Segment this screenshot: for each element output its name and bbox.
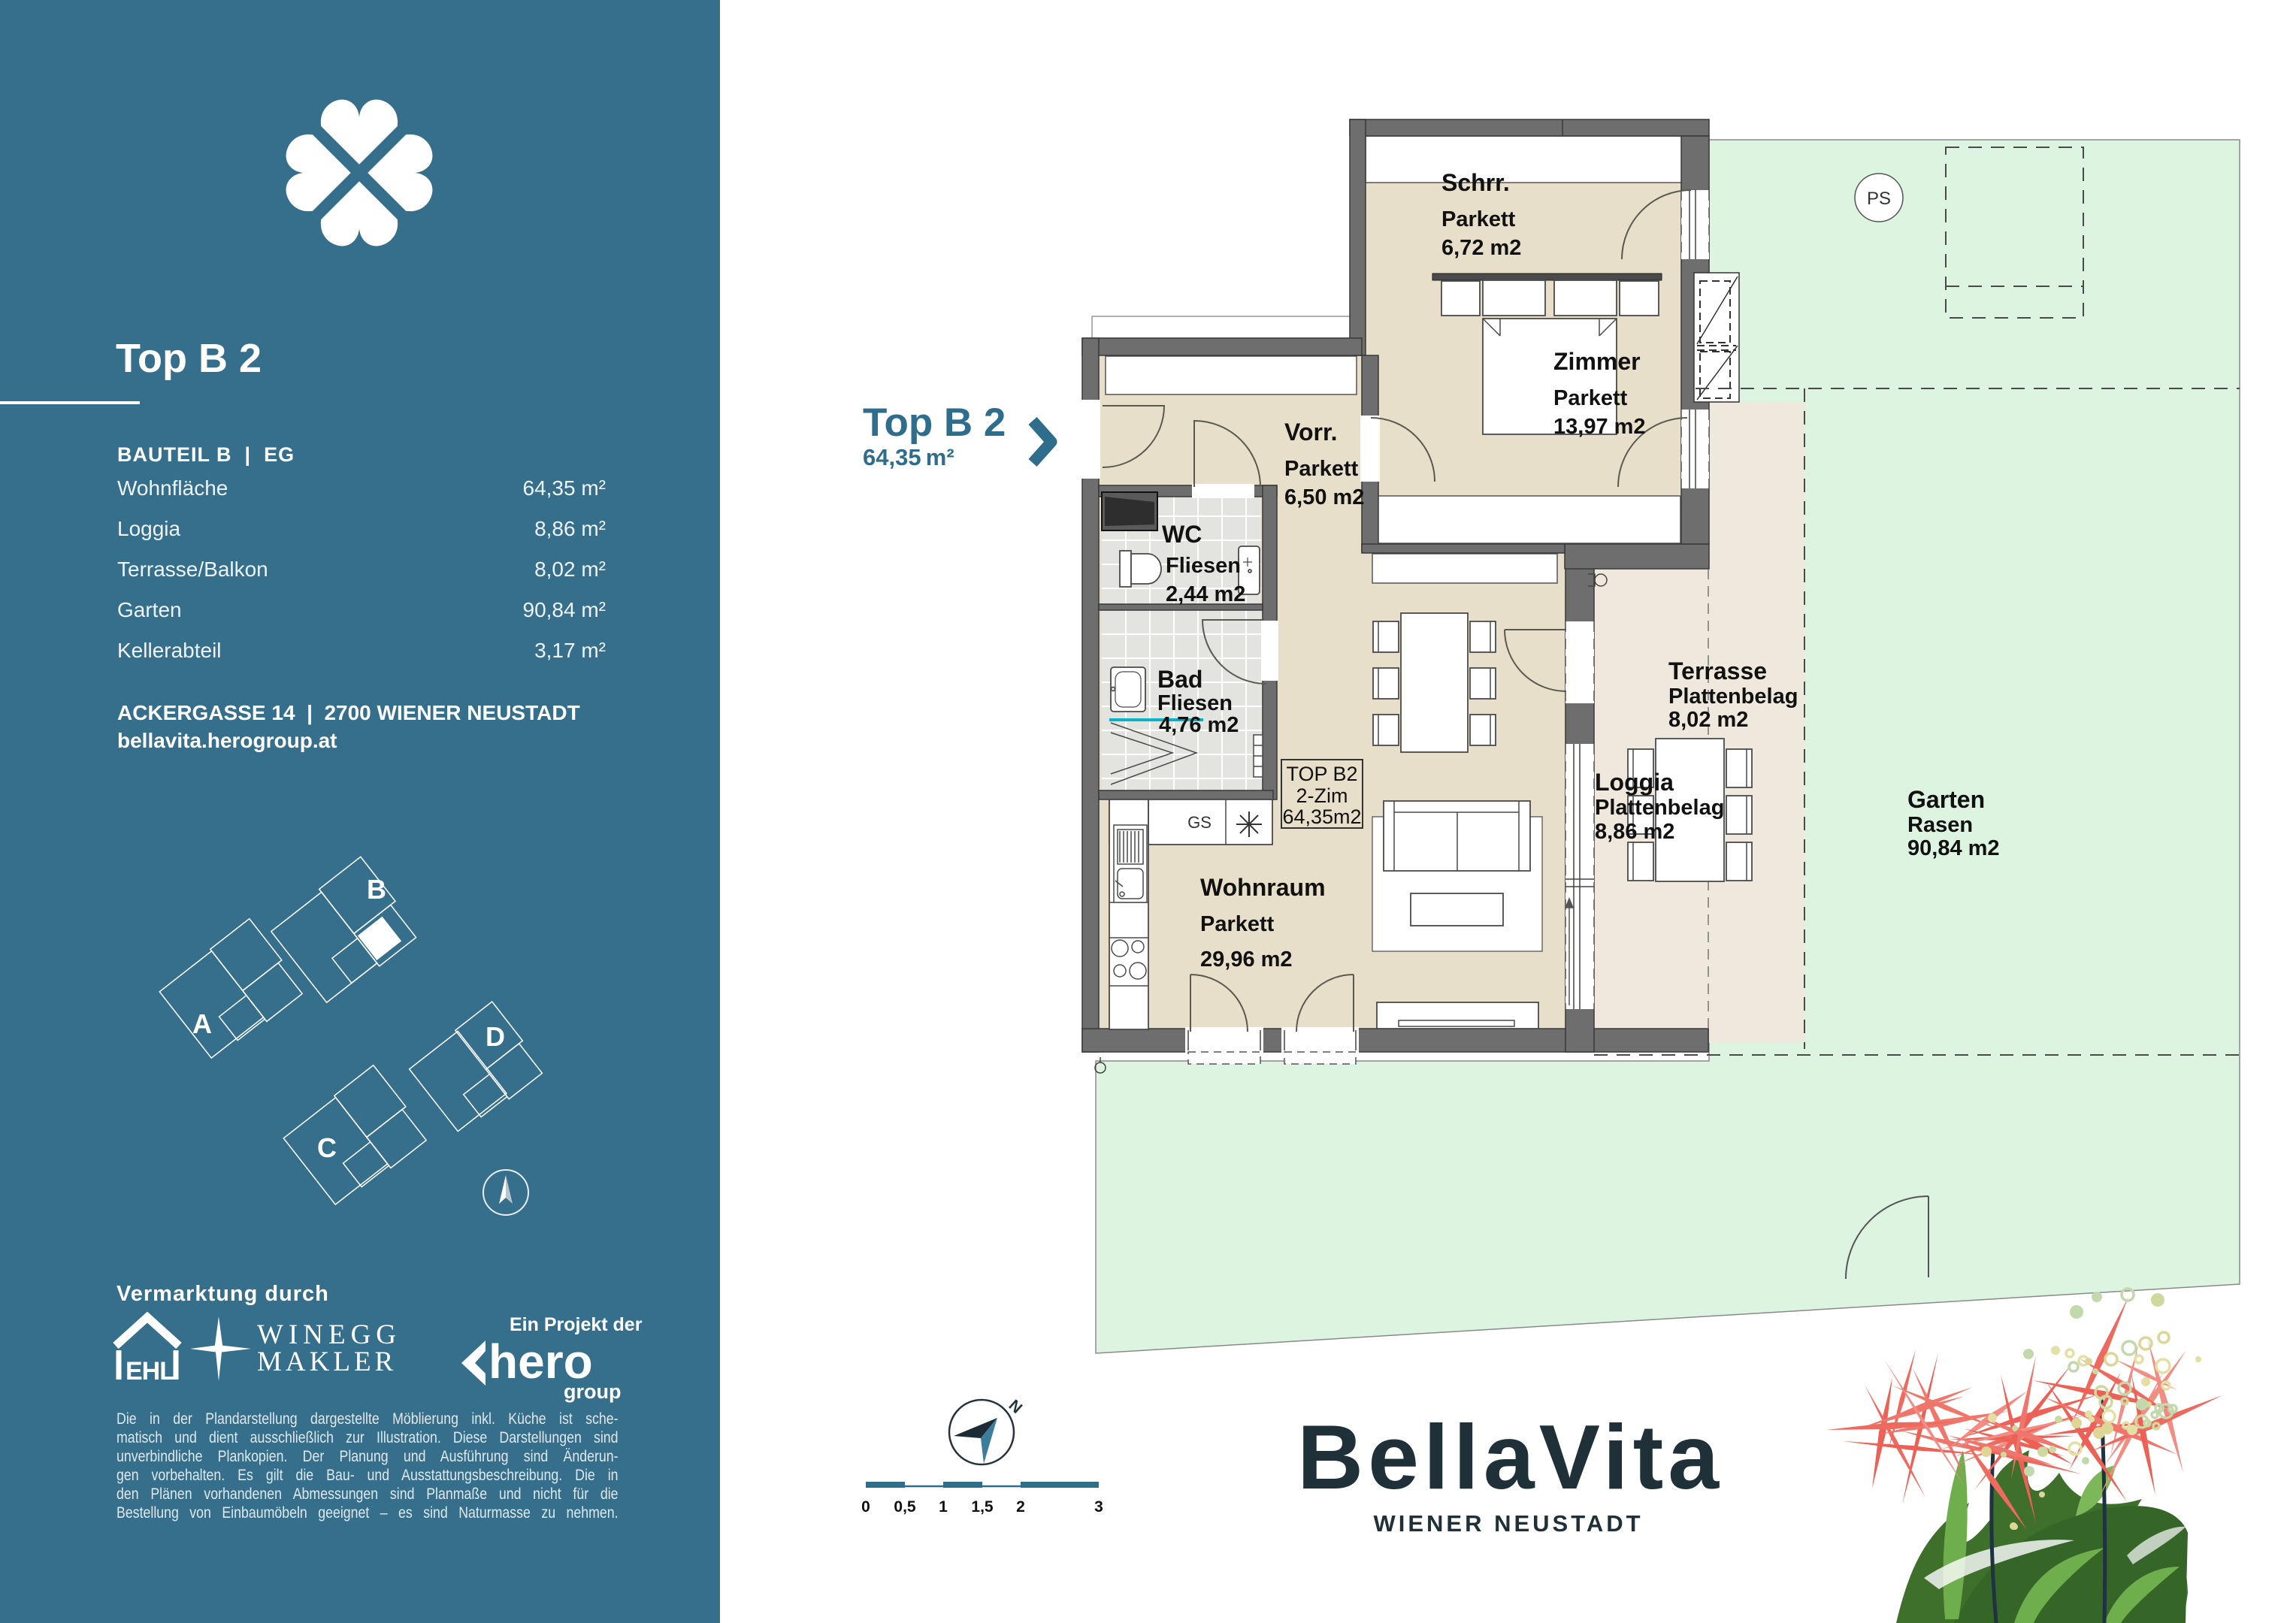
svg-text:Bad: Bad <box>1157 666 1202 693</box>
svg-text:Schrr.: Schrr. <box>1441 169 1510 196</box>
svg-text:90,84 m2: 90,84 m2 <box>1907 836 2000 860</box>
svg-text:BellaVita: BellaVita <box>1297 1406 1723 1508</box>
svg-text:Rasen: Rasen <box>1907 813 1973 837</box>
svg-text:Parkett: Parkett <box>1284 457 1359 481</box>
svg-text:group: group <box>564 1380 621 1403</box>
svg-text:13,97 m2: 13,97 m2 <box>1553 415 1646 439</box>
svg-text:B: B <box>367 874 386 905</box>
svg-text:GS: GS <box>1187 813 1212 832</box>
svg-text:WIENER NEUSTADT: WIENER NEUSTADT <box>1373 1510 1643 1537</box>
svg-text:0,5: 0,5 <box>894 1498 916 1516</box>
svg-text:Top B 2: Top B 2 <box>863 400 1006 445</box>
svg-text:EHL: EHL <box>126 1357 174 1386</box>
svg-text:Vorr.: Vorr. <box>1284 419 1338 446</box>
svg-text:64,35m2: 64,35m2 <box>1282 805 1361 828</box>
svg-text:2-Zim: 2-Zim <box>1296 784 1348 807</box>
svg-text:WC: WC <box>1162 521 1202 548</box>
svg-text:3: 3 <box>1094 1498 1103 1516</box>
svg-text:PS: PS <box>1867 189 1891 209</box>
svg-text:Fliesen: Fliesen <box>1157 691 1233 715</box>
svg-text:Fliesen: Fliesen <box>1166 554 1241 578</box>
svg-text:6,72 m2: 6,72 m2 <box>1441 236 1521 260</box>
svg-text:2,44 m2: 2,44 m2 <box>1166 582 1245 606</box>
svg-text:Ein Projekt der: Ein Projekt der <box>510 1314 643 1335</box>
svg-text:Parkett: Parkett <box>1200 912 1275 936</box>
svg-text:Parkett: Parkett <box>1441 207 1516 231</box>
svg-text:29,96 m2: 29,96 m2 <box>1200 948 1293 972</box>
svg-text:Zimmer: Zimmer <box>1553 348 1641 375</box>
svg-text:Terrasse: Terrasse <box>1668 657 1767 685</box>
svg-text:Plattenbelag: Plattenbelag <box>1595 796 1724 820</box>
svg-text:A: A <box>192 1008 212 1039</box>
svg-text:6,50 m2: 6,50 m2 <box>1284 485 1364 509</box>
svg-text:Parkett: Parkett <box>1553 386 1628 410</box>
svg-text:8,02 m2: 8,02 m2 <box>1668 708 1748 732</box>
svg-text:C: C <box>317 1132 337 1163</box>
svg-text:D: D <box>486 1021 505 1052</box>
svg-text:2: 2 <box>1016 1498 1025 1516</box>
svg-text:TOP B2: TOP B2 <box>1286 763 1357 785</box>
svg-text:4,76 m2: 4,76 m2 <box>1159 713 1239 737</box>
svg-text:1: 1 <box>939 1498 948 1516</box>
svg-text:MAKLER: MAKLER <box>257 1346 397 1377</box>
svg-text:Plattenbelag: Plattenbelag <box>1668 685 1798 709</box>
svg-text:0: 0 <box>861 1498 870 1516</box>
svg-text:Wohnraum: Wohnraum <box>1200 874 1326 901</box>
svg-text:Loggia: Loggia <box>1595 769 1674 796</box>
svg-text:64,35 m²: 64,35 m² <box>863 444 954 470</box>
svg-text:WINEGG: WINEGG <box>257 1319 401 1350</box>
svg-text:8,86 m2: 8,86 m2 <box>1595 820 1674 844</box>
svg-text:Garten: Garten <box>1907 786 1985 813</box>
svg-text:1,5: 1,5 <box>971 1498 994 1516</box>
